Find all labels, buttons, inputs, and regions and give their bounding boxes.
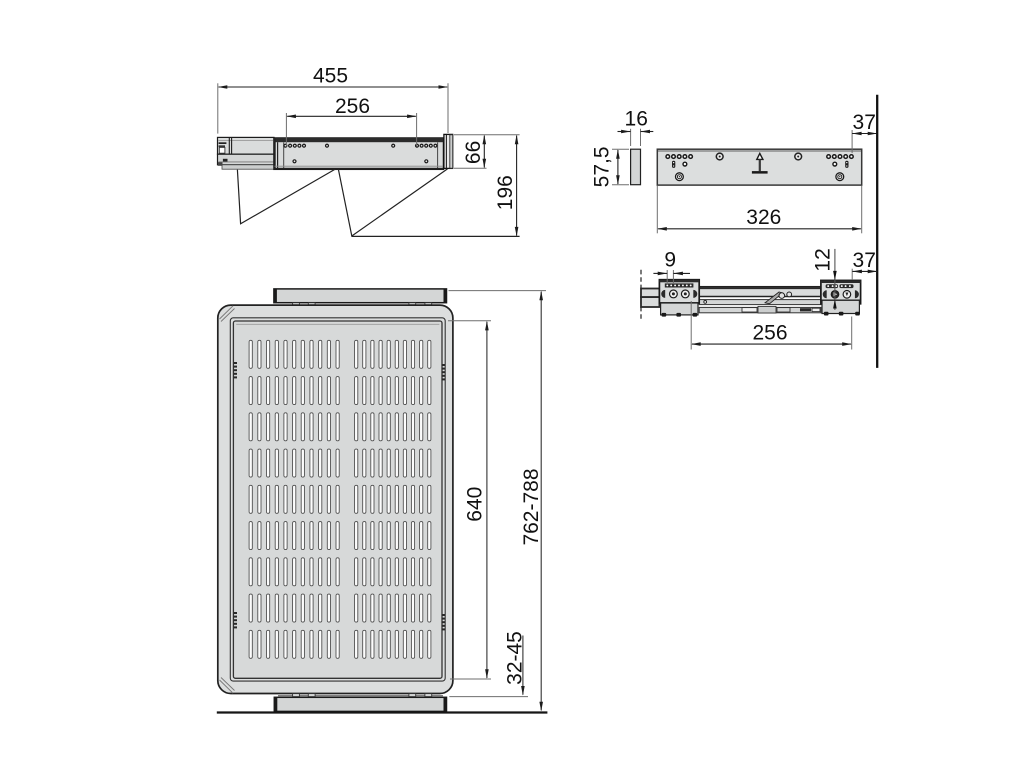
svg-text:256: 256 bbox=[335, 95, 370, 118]
svg-text:37: 37 bbox=[853, 249, 876, 272]
svg-text:256: 256 bbox=[752, 321, 787, 344]
svg-text:66: 66 bbox=[462, 141, 485, 164]
svg-text:640: 640 bbox=[464, 487, 487, 522]
svg-text:32-45: 32-45 bbox=[503, 631, 526, 685]
svg-text:57,5: 57,5 bbox=[591, 146, 614, 187]
svg-text:196: 196 bbox=[494, 175, 517, 210]
svg-text:37: 37 bbox=[853, 111, 876, 134]
svg-text:455: 455 bbox=[313, 65, 348, 88]
svg-text:762-788: 762-788 bbox=[520, 468, 543, 545]
svg-text:326: 326 bbox=[746, 206, 781, 229]
svg-text:9: 9 bbox=[664, 248, 676, 271]
svg-text:12: 12 bbox=[812, 248, 835, 271]
svg-text:16: 16 bbox=[625, 107, 648, 130]
